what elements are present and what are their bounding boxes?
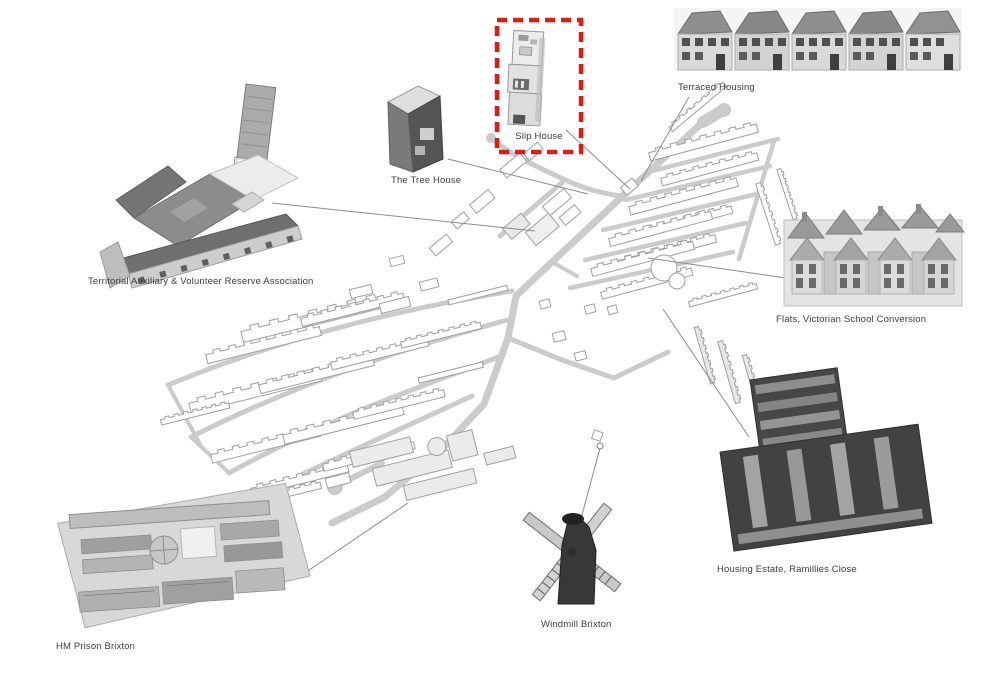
windmill-map-marker	[597, 443, 603, 449]
label-flats-school: Flats, Victorian School Conversion	[776, 314, 926, 325]
photo-tree-house	[388, 86, 443, 172]
label-ramillies: Housing Estate, Ramillies Close	[717, 564, 857, 575]
photo-tavra	[100, 84, 302, 288]
label-tree-house: The Tree House	[391, 175, 461, 186]
photo-terraced-housing	[674, 8, 962, 70]
leader-tavra	[272, 203, 535, 231]
institution-complex-map	[320, 413, 519, 518]
photo-ramillies-estate	[720, 368, 932, 551]
label-terraced-housing: Terraced Housing	[678, 82, 755, 93]
diagram-artwork	[0, 0, 1000, 689]
photo-slip-house	[506, 30, 546, 126]
label-tavra: Territorial Auxiliary & Volunteer Reserv…	[88, 276, 314, 287]
photo-windmill	[523, 503, 621, 604]
label-windmill: Windmill Brixton	[541, 619, 612, 630]
label-slip-house: Slip House	[497, 131, 581, 142]
photo-prison	[56, 482, 312, 629]
site-context-diagram: Slip House The Tree House Terraced Housi…	[0, 0, 1000, 689]
photo-flats-school	[784, 204, 964, 306]
leader-ramillies	[663, 309, 749, 437]
estate-blocks-map	[503, 213, 764, 412]
label-prison: HM Prison Brixton	[56, 641, 135, 652]
